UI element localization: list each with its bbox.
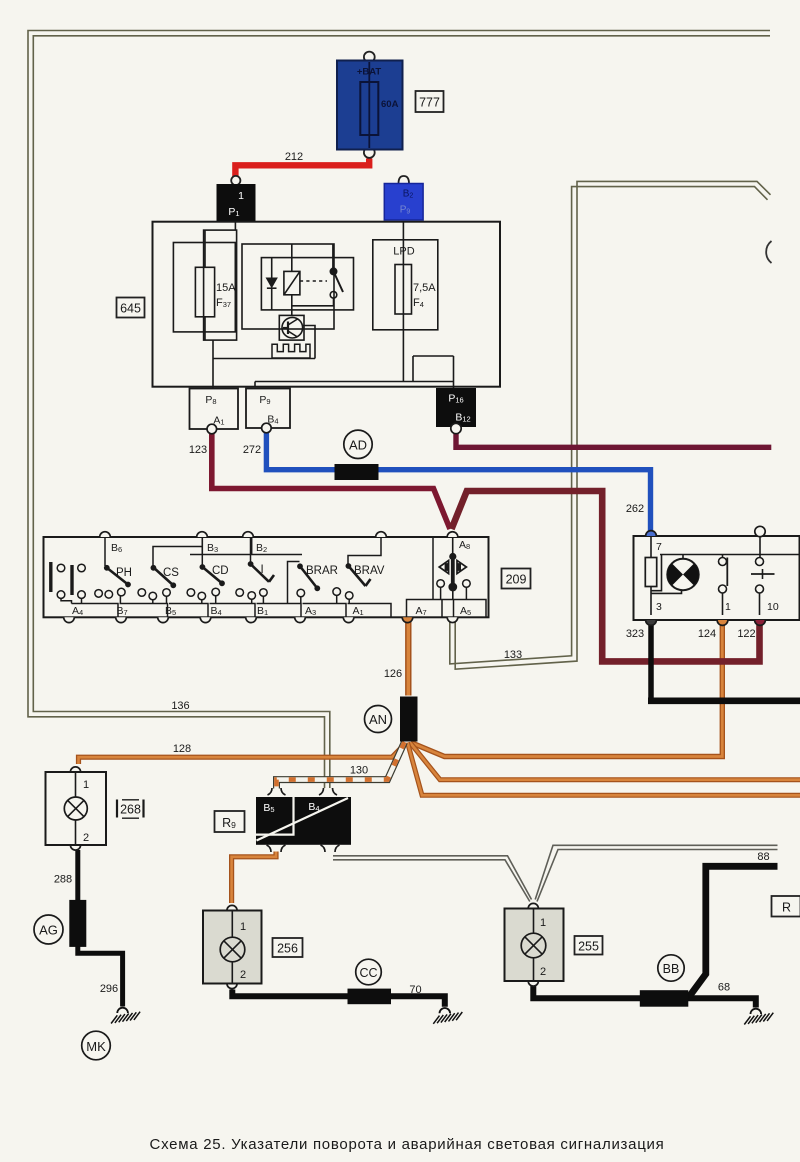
svg-text:LPD: LPD [393,246,414,258]
svg-text:10: 10 [767,601,779,613]
svg-text:1: 1 [238,190,244,202]
svg-text:70: 70 [409,984,421,996]
svg-text:7: 7 [656,541,662,553]
svg-text:BRAR: BRAR [306,565,338,577]
svg-text:CD: CD [212,565,229,577]
svg-text:2: 2 [240,969,246,981]
svg-text:1: 1 [83,779,89,791]
svg-text:15A: 15A [216,282,236,294]
svg-text:128: 128 [173,743,191,755]
svg-text:262: 262 [626,503,644,515]
svg-text:777: 777 [419,96,440,110]
svg-text:68: 68 [718,982,730,994]
svg-text:7,5A: 7,5A [413,282,436,294]
svg-text:CS: CS [163,567,179,579]
svg-text:122: 122 [737,628,755,640]
svg-text:AN: AN [369,712,387,727]
svg-text:123: 123 [189,444,207,456]
svg-text:124: 124 [698,628,716,640]
svg-text:MK: MK [86,1039,106,1054]
svg-text:BB: BB [663,962,680,976]
svg-text:1: 1 [725,601,731,613]
svg-text:2: 2 [540,966,546,978]
svg-text:272: 272 [243,444,261,456]
svg-text:1: 1 [540,917,546,929]
svg-text:AD: AD [349,437,367,452]
svg-text:209: 209 [506,573,527,587]
svg-text:126: 126 [384,668,402,680]
svg-text:60A: 60A [381,99,399,110]
svg-text:133: 133 [504,649,522,661]
svg-text:3: 3 [656,601,662,613]
svg-text:Схема 25. Указатели поворота и: Схема 25. Указатели поворота и аварийная… [150,1136,665,1153]
svg-text:130: 130 [350,765,368,777]
svg-text:296: 296 [100,983,118,995]
svg-text:136: 136 [171,700,189,712]
svg-text:BRAV: BRAV [354,565,385,577]
svg-text:AG: AG [39,923,58,938]
svg-text:1: 1 [240,921,246,933]
svg-text:255: 255 [578,940,599,954]
svg-text:PH: PH [116,567,132,579]
svg-text:645: 645 [120,302,141,316]
svg-text:268: 268 [120,803,141,817]
svg-text:R: R [782,901,791,915]
svg-text:+BAT: +BAT [357,67,382,78]
svg-text:256: 256 [277,942,298,956]
svg-text:288: 288 [54,874,72,886]
svg-text:2: 2 [83,832,89,844]
svg-text:212: 212 [285,151,303,163]
svg-text:88: 88 [757,851,769,863]
svg-text:I: I [261,564,264,576]
svg-text:CC: CC [359,966,377,980]
svg-text:323: 323 [626,628,644,640]
